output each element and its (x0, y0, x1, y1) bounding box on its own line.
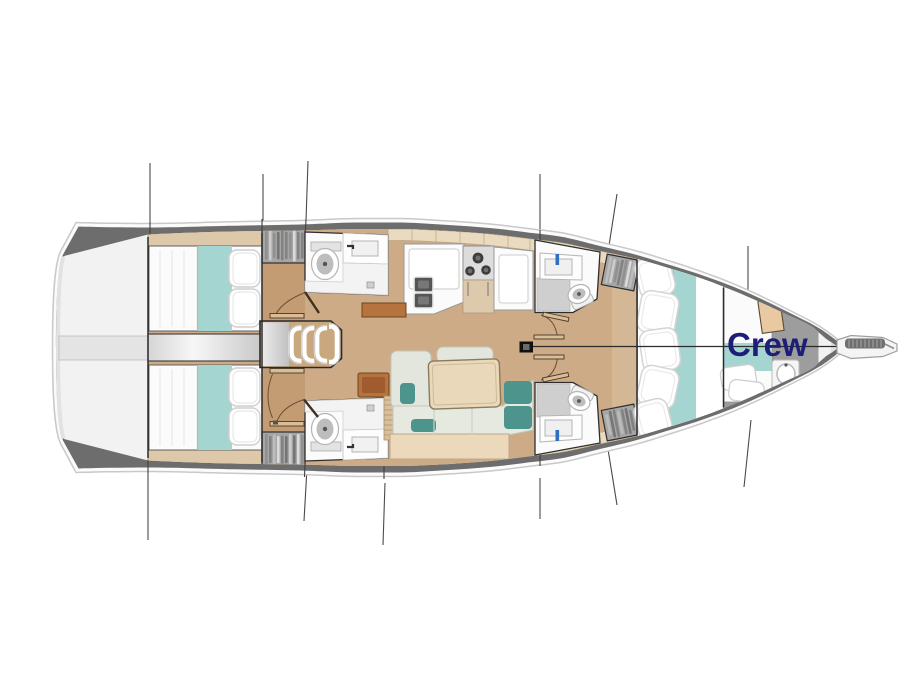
svg-text:Crew: Crew (727, 326, 808, 363)
